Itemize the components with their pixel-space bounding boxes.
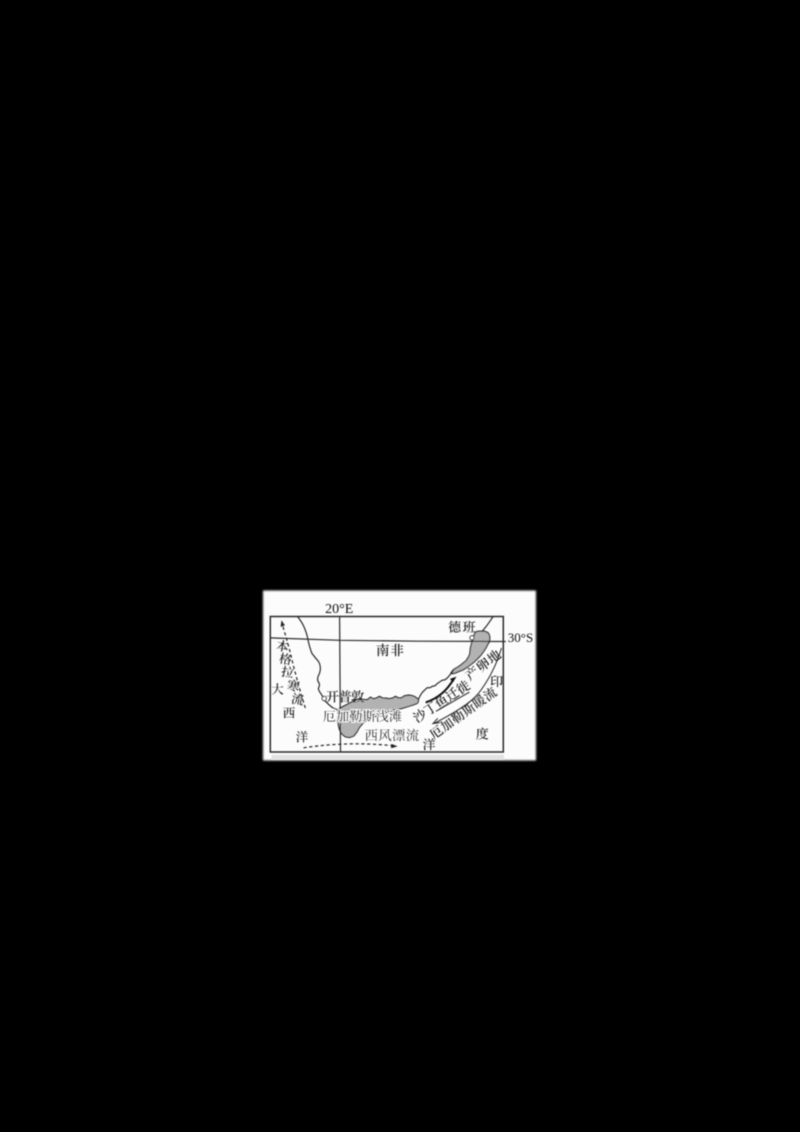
- svg-text:30°S: 30°S: [508, 630, 533, 645]
- svg-text:20°E: 20°E: [325, 602, 353, 617]
